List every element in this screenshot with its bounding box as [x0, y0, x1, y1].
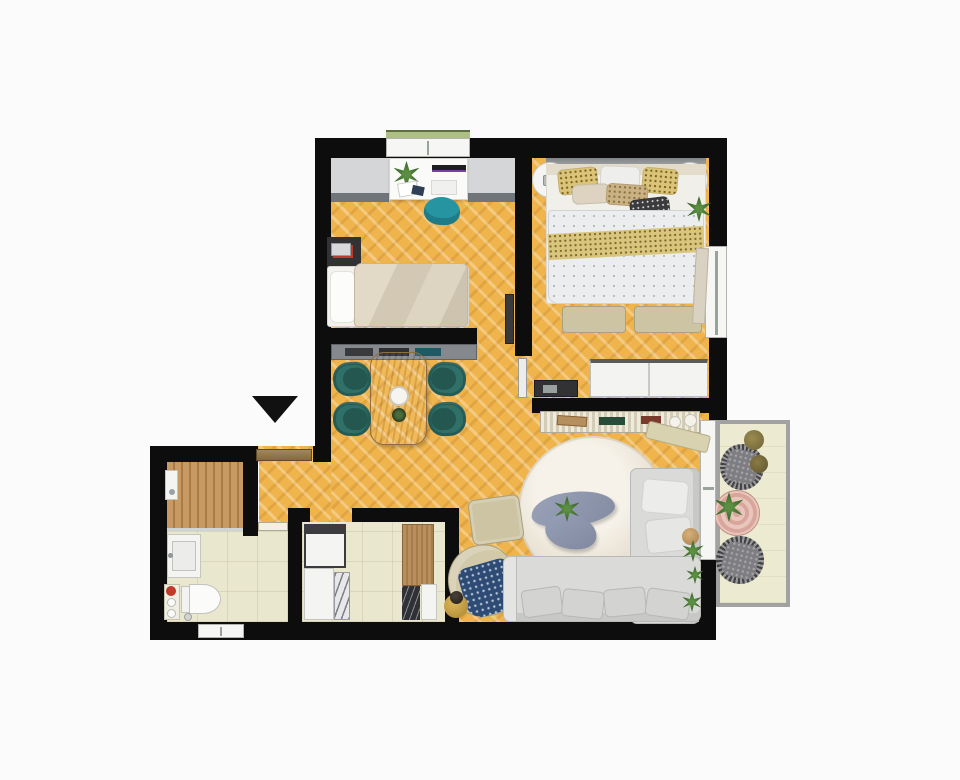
- wall-entry-right: [313, 446, 331, 462]
- entry-door-leaf: [256, 449, 312, 461]
- room-kitchen: [302, 522, 445, 622]
- room-balcony: [716, 420, 790, 607]
- floor-plan: [0, 0, 960, 780]
- room-master-bedroom: [532, 158, 709, 398]
- wall-divider-office-bedroom: [515, 158, 532, 330]
- room-office-bedroom: [331, 158, 515, 328]
- entrance-arrow-icon: [252, 396, 298, 423]
- wall-living-right-bottom: [699, 556, 716, 640]
- bathroom-window-mullion: [220, 627, 222, 636]
- wall-office-bottom: [315, 328, 477, 344]
- balcony-door-divider: [703, 487, 714, 490]
- wall-bathroom-kitchen: [288, 522, 302, 622]
- bedroom-window-mullion: [715, 251, 718, 335]
- wall-kitchen-top-left: [288, 508, 310, 522]
- office-window-sill: [386, 130, 470, 138]
- wall-top: [315, 138, 727, 158]
- room-bathroom: [167, 462, 288, 622]
- wall-kitchen-top-right: [352, 508, 458, 522]
- bathroom-window: [198, 624, 244, 638]
- office-window-mullion: [427, 141, 429, 155]
- office-window: [386, 138, 470, 157]
- wall-divider-stub: [515, 330, 532, 356]
- room-living: [459, 413, 699, 622]
- bedroom-door-leaf: [518, 358, 527, 398]
